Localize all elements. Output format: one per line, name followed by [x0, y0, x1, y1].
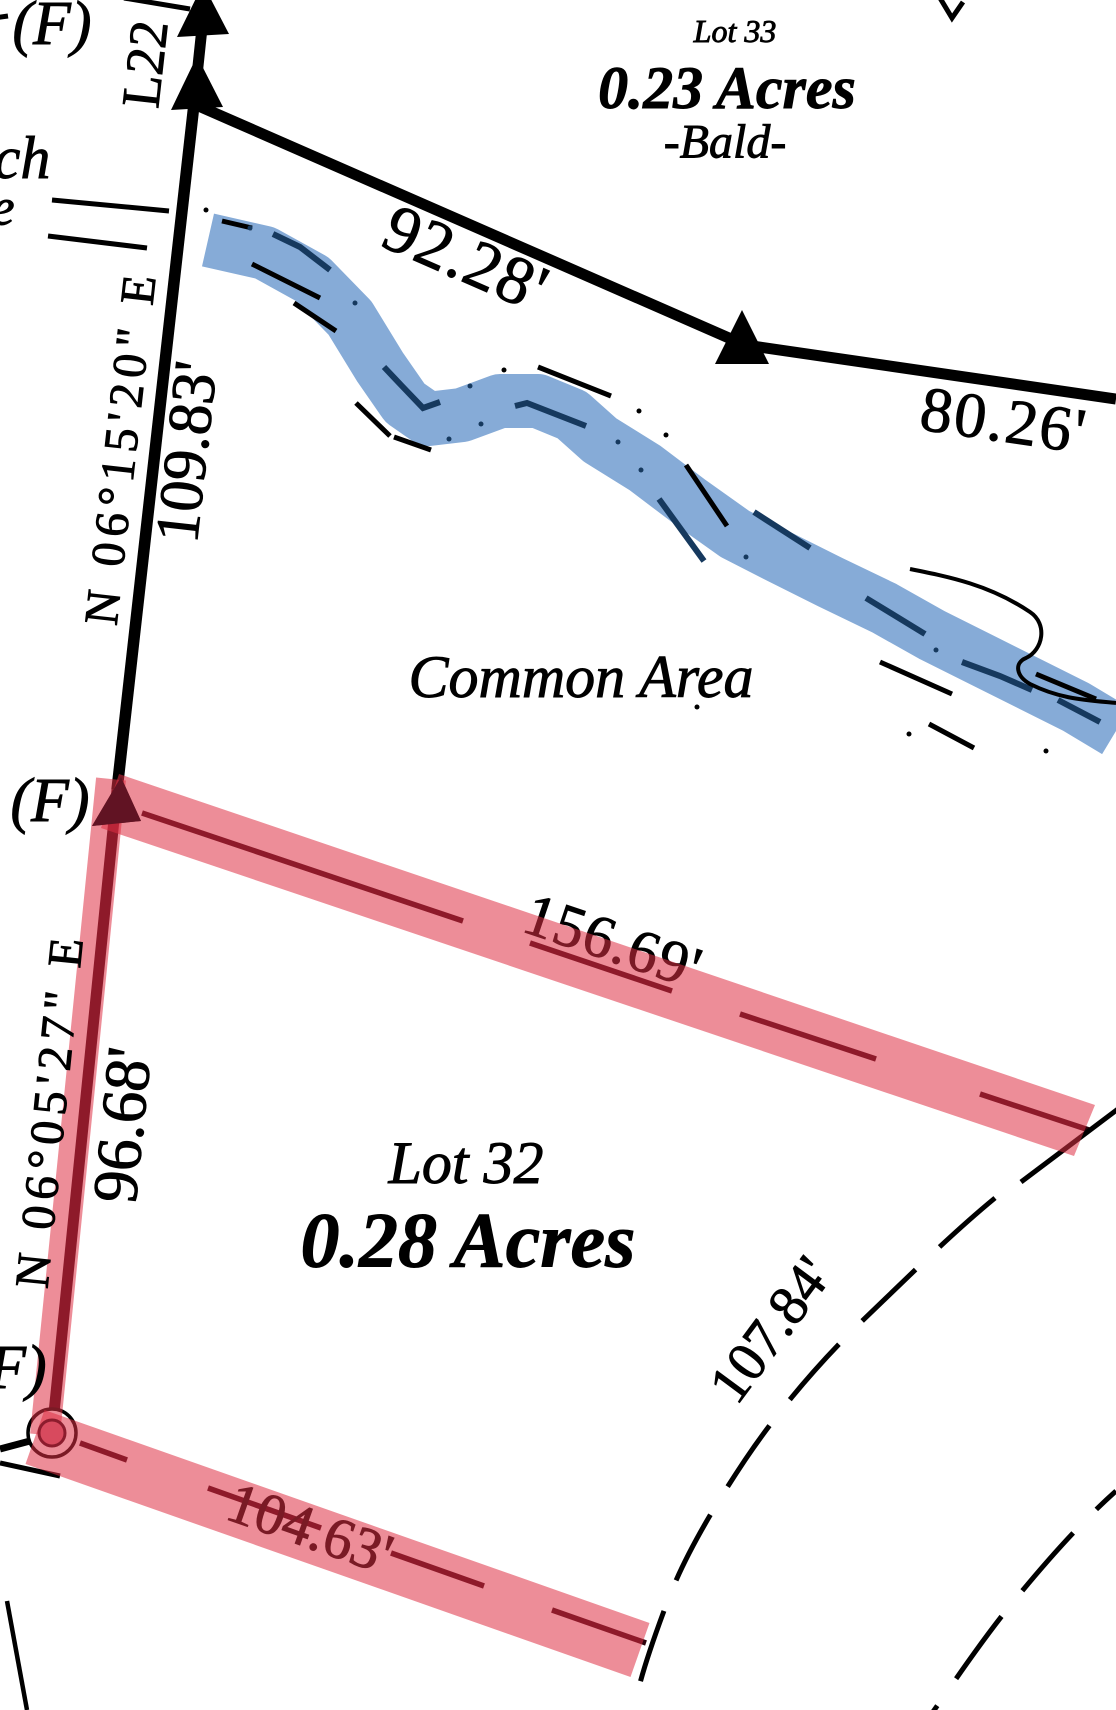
svg-text:92.28': 92.28'	[372, 189, 559, 327]
svg-text:e: e	[0, 180, 15, 237]
svg-text:(F): (F)	[0, 1334, 47, 1402]
svg-text:Lot 32: Lot 32	[387, 1130, 543, 1196]
svg-text:96.68': 96.68'	[79, 1044, 165, 1206]
svg-text:107.84': 107.84'	[697, 1246, 844, 1415]
svg-text:(F): (F)	[10, 767, 89, 835]
svg-text:Lot 33: Lot 33	[693, 13, 777, 49]
svg-text:Common Area: Common Area	[409, 644, 754, 710]
svg-text:0.23 Acres: 0.23 Acres	[598, 55, 856, 121]
svg-text:0.28 Acres: 0.28 Acres	[300, 1197, 635, 1284]
svg-text:109.83': 109.83'	[143, 358, 231, 546]
svg-text:L22: L22	[110, 17, 179, 110]
svg-text:(F): (F)	[12, 0, 91, 58]
svg-text:-Bald-: -Bald-	[664, 116, 787, 169]
